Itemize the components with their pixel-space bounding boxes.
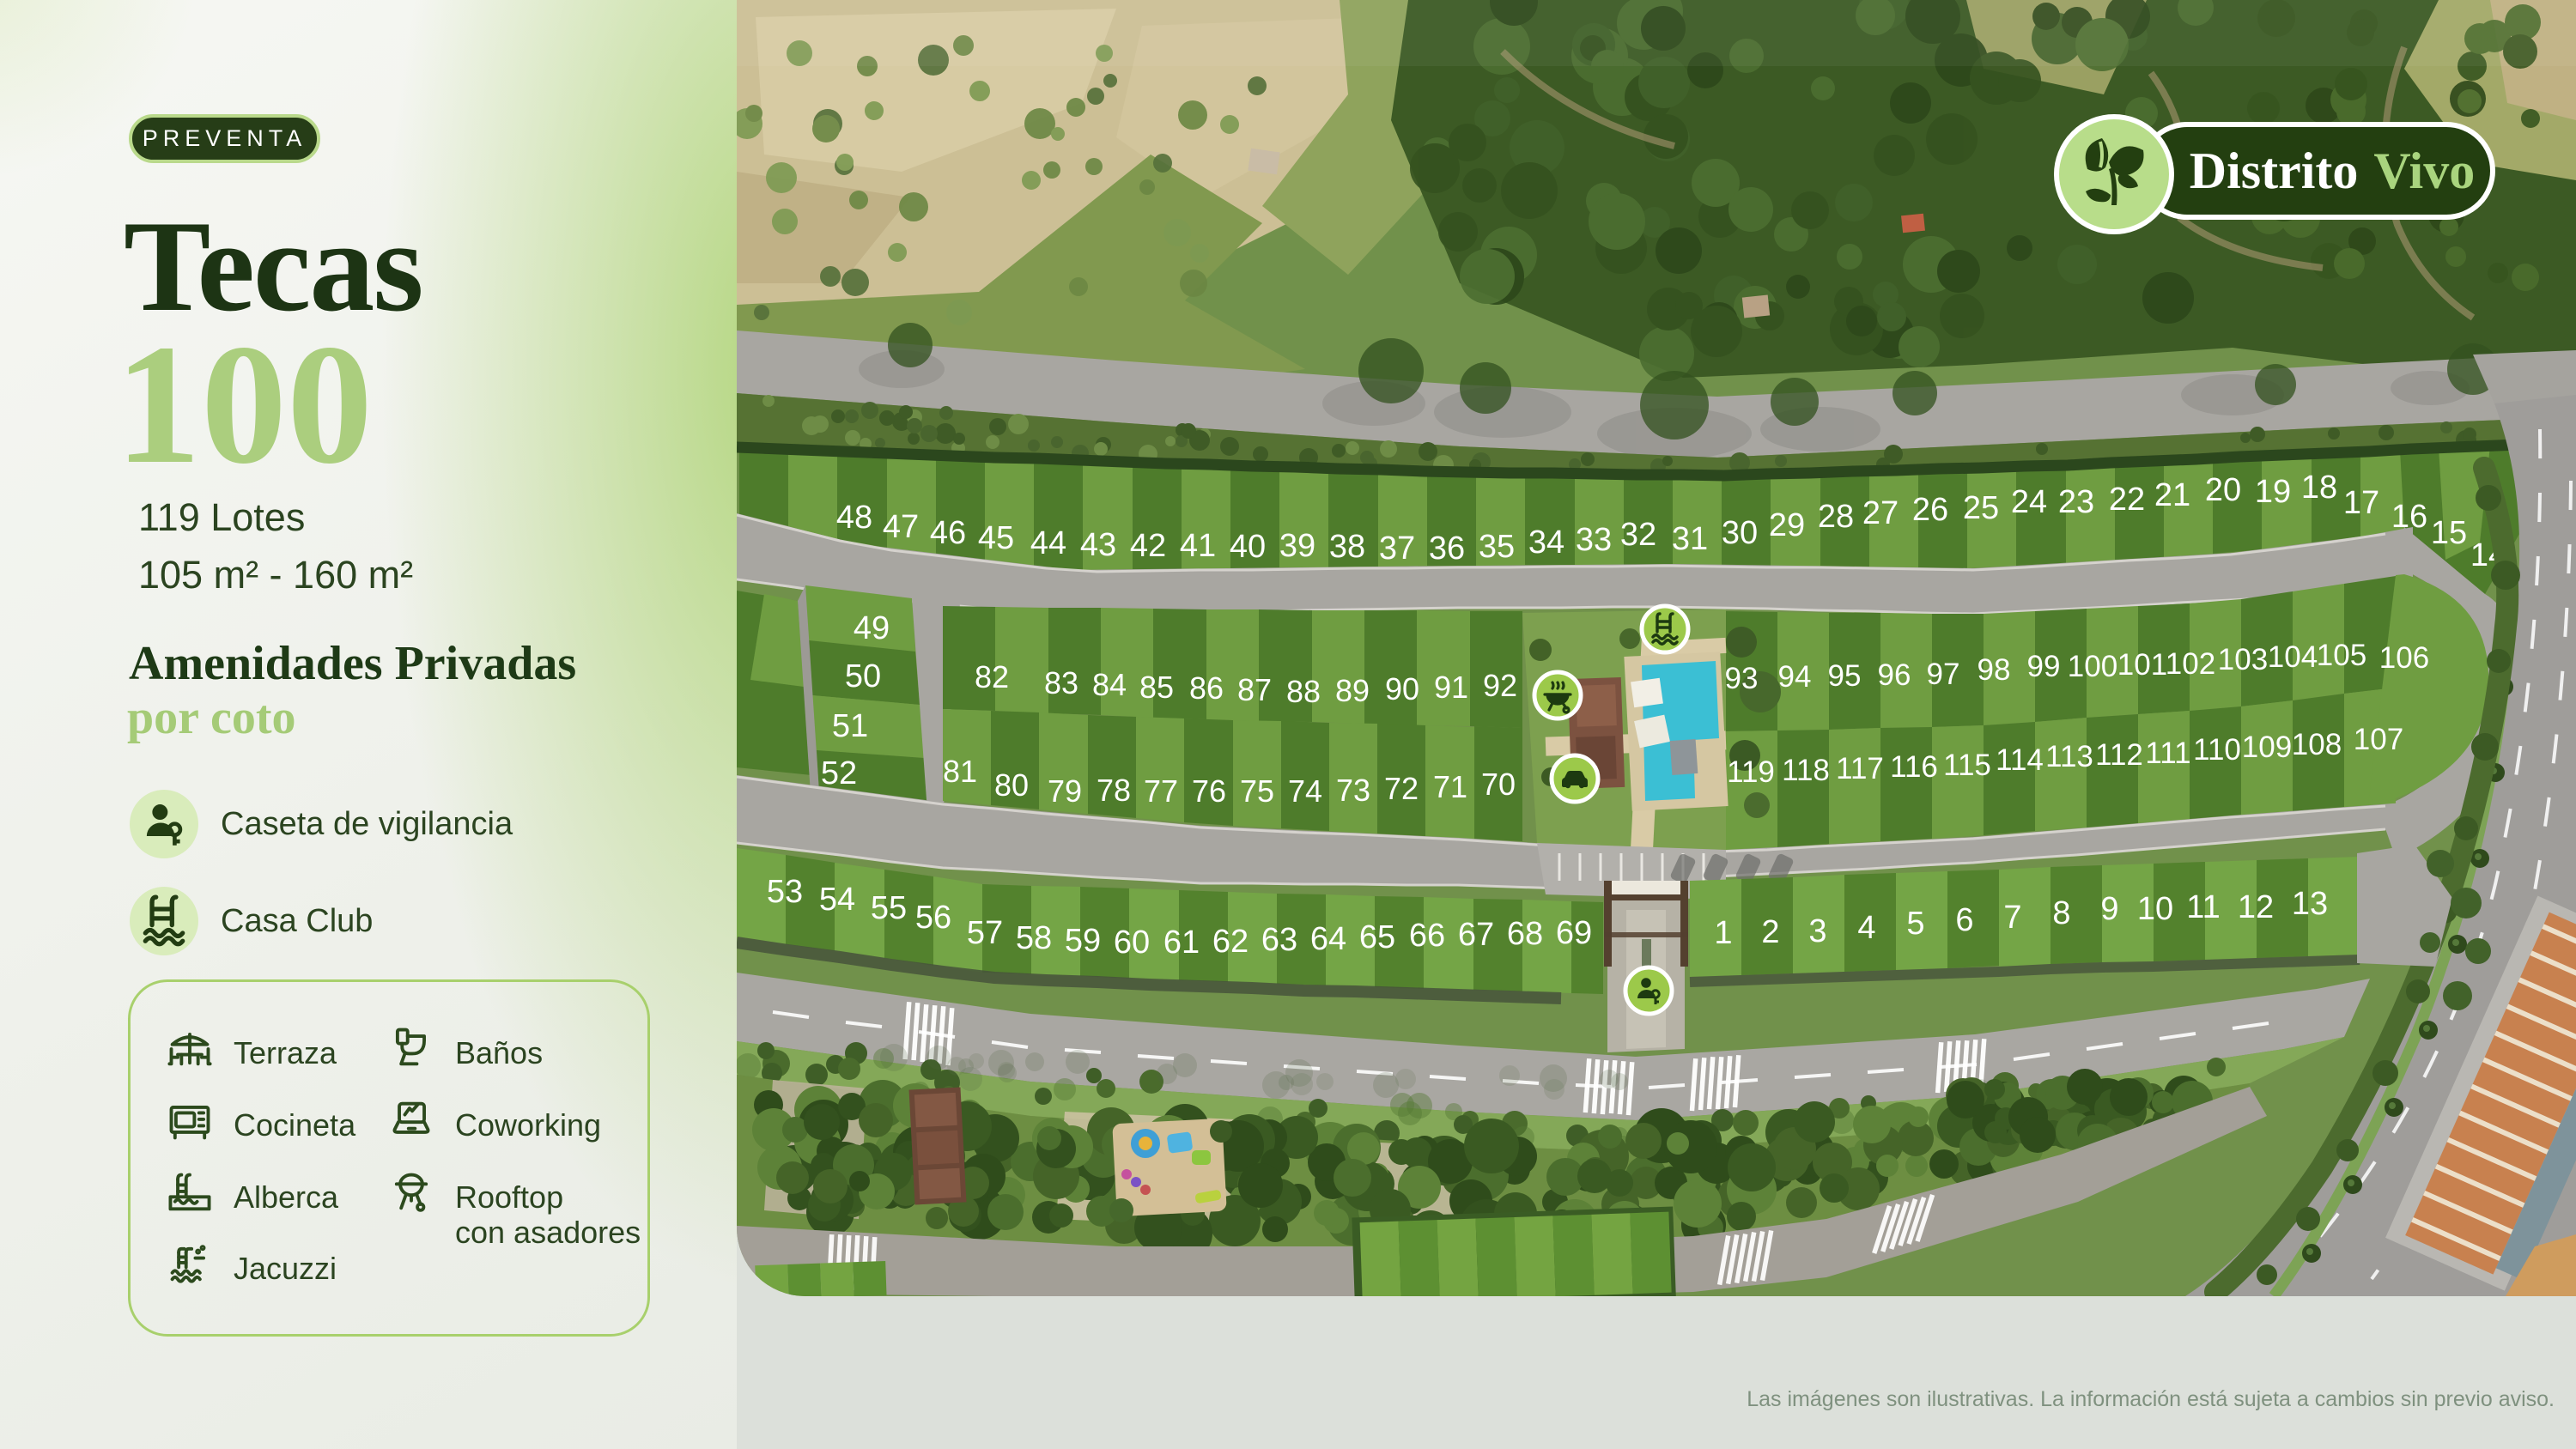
svg-text:79: 79 xyxy=(1048,773,1082,809)
svg-text:76: 76 xyxy=(1192,773,1226,809)
svg-text:78: 78 xyxy=(1097,773,1131,808)
svg-text:59: 59 xyxy=(1065,923,1101,959)
svg-text:84: 84 xyxy=(1092,667,1127,702)
svg-text:80: 80 xyxy=(994,767,1029,803)
svg-text:20: 20 xyxy=(2205,472,2241,508)
svg-text:17: 17 xyxy=(2343,485,2379,521)
svg-text:48: 48 xyxy=(836,500,872,536)
svg-text:86: 86 xyxy=(1189,670,1224,706)
svg-text:7: 7 xyxy=(2003,900,2021,936)
svg-text:49: 49 xyxy=(854,610,890,646)
svg-text:97: 97 xyxy=(1927,658,1960,691)
svg-text:10: 10 xyxy=(2137,891,2173,927)
svg-text:26: 26 xyxy=(1912,492,1948,528)
svg-text:91: 91 xyxy=(1434,670,1468,705)
svg-text:9: 9 xyxy=(2100,891,2118,927)
svg-text:96: 96 xyxy=(1878,658,1911,692)
svg-text:61: 61 xyxy=(1163,925,1200,961)
svg-text:103: 103 xyxy=(2218,643,2268,676)
svg-text:40: 40 xyxy=(1230,529,1266,565)
svg-text:52: 52 xyxy=(821,755,857,791)
svg-text:100: 100 xyxy=(2068,650,2117,683)
svg-text:90: 90 xyxy=(1385,671,1419,706)
svg-text:51: 51 xyxy=(832,708,868,744)
svg-text:112: 112 xyxy=(2095,738,2143,772)
svg-text:99: 99 xyxy=(2027,650,2061,683)
svg-text:117: 117 xyxy=(1836,752,1884,785)
svg-text:104: 104 xyxy=(2268,640,2318,674)
svg-text:118: 118 xyxy=(1782,754,1830,787)
svg-text:113: 113 xyxy=(2045,740,2093,773)
svg-text:116: 116 xyxy=(1890,750,1938,784)
svg-text:5: 5 xyxy=(1906,906,1924,942)
svg-text:36: 36 xyxy=(1429,530,1465,567)
svg-text:89: 89 xyxy=(1335,673,1370,708)
svg-text:22: 22 xyxy=(2109,482,2145,518)
svg-text:62: 62 xyxy=(1212,924,1249,960)
svg-text:88: 88 xyxy=(1286,674,1321,709)
svg-text:60: 60 xyxy=(1114,925,1150,961)
svg-text:23: 23 xyxy=(2058,484,2094,520)
svg-text:43: 43 xyxy=(1080,527,1116,563)
svg-text:106: 106 xyxy=(2379,641,2429,675)
svg-text:69: 69 xyxy=(1556,915,1592,951)
svg-text:107: 107 xyxy=(2354,723,2403,756)
svg-text:32: 32 xyxy=(1620,517,1656,553)
svg-text:73: 73 xyxy=(1336,773,1370,808)
svg-text:46: 46 xyxy=(930,515,966,551)
svg-text:29: 29 xyxy=(1769,507,1805,543)
svg-text:37: 37 xyxy=(1379,530,1415,567)
svg-text:44: 44 xyxy=(1030,525,1066,561)
svg-text:53: 53 xyxy=(767,874,803,910)
svg-text:101: 101 xyxy=(2117,648,2167,682)
svg-text:50: 50 xyxy=(845,658,881,694)
svg-text:64: 64 xyxy=(1310,921,1346,957)
svg-text:65: 65 xyxy=(1359,919,1395,955)
svg-text:108: 108 xyxy=(2292,728,2342,761)
svg-text:39: 39 xyxy=(1279,528,1315,564)
svg-text:92: 92 xyxy=(1483,668,1517,703)
svg-text:94: 94 xyxy=(1778,660,1812,694)
svg-text:58: 58 xyxy=(1016,920,1052,956)
svg-text:12: 12 xyxy=(2238,889,2274,925)
svg-text:68: 68 xyxy=(1507,916,1543,952)
svg-text:11: 11 xyxy=(2186,889,2220,925)
svg-text:30: 30 xyxy=(1722,515,1758,551)
svg-text:56: 56 xyxy=(915,900,951,936)
svg-text:74: 74 xyxy=(1288,773,1322,809)
svg-text:55: 55 xyxy=(871,890,907,926)
svg-text:41: 41 xyxy=(1180,528,1216,564)
svg-text:82: 82 xyxy=(975,659,1009,694)
svg-text:63: 63 xyxy=(1261,922,1297,958)
svg-text:2: 2 xyxy=(1761,914,1779,950)
svg-text:110: 110 xyxy=(2193,733,2241,767)
svg-text:70: 70 xyxy=(1481,767,1516,802)
svg-text:77: 77 xyxy=(1144,773,1178,809)
svg-text:102: 102 xyxy=(2166,647,2215,681)
svg-text:105: 105 xyxy=(2317,639,2366,672)
svg-text:33: 33 xyxy=(1576,522,1612,558)
svg-text:27: 27 xyxy=(1862,495,1899,531)
svg-text:35: 35 xyxy=(1479,529,1515,565)
svg-text:98: 98 xyxy=(1978,653,2011,687)
svg-text:15: 15 xyxy=(2431,515,2467,551)
svg-text:93: 93 xyxy=(1725,662,1759,695)
svg-text:119: 119 xyxy=(1727,755,1775,789)
svg-text:81: 81 xyxy=(943,754,977,789)
svg-text:115: 115 xyxy=(1943,749,1991,782)
svg-text:83: 83 xyxy=(1044,665,1078,700)
svg-text:71: 71 xyxy=(1433,769,1467,804)
svg-text:95: 95 xyxy=(1828,659,1862,693)
svg-text:8: 8 xyxy=(2052,895,2070,931)
svg-text:57: 57 xyxy=(967,915,1003,951)
svg-text:66: 66 xyxy=(1409,918,1445,954)
svg-text:75: 75 xyxy=(1240,773,1274,809)
svg-text:1: 1 xyxy=(1714,915,1732,951)
svg-text:114: 114 xyxy=(1996,743,2044,777)
svg-text:24: 24 xyxy=(2011,484,2047,520)
svg-text:34: 34 xyxy=(1528,524,1564,561)
svg-text:3: 3 xyxy=(1808,913,1826,949)
svg-text:18: 18 xyxy=(2301,470,2337,506)
svg-text:19: 19 xyxy=(2255,474,2291,510)
svg-text:21: 21 xyxy=(2154,477,2190,513)
svg-text:111: 111 xyxy=(2145,737,2190,770)
svg-text:85: 85 xyxy=(1139,670,1174,705)
svg-text:6: 6 xyxy=(1955,902,1973,938)
svg-text:72: 72 xyxy=(1384,771,1419,806)
svg-text:47: 47 xyxy=(883,509,919,545)
svg-text:4: 4 xyxy=(1857,910,1875,946)
svg-text:54: 54 xyxy=(819,882,855,918)
svg-text:13: 13 xyxy=(2292,886,2328,922)
svg-text:31: 31 xyxy=(1672,521,1708,557)
svg-text:42: 42 xyxy=(1130,528,1166,564)
svg-text:87: 87 xyxy=(1237,672,1272,707)
svg-text:45: 45 xyxy=(978,520,1014,556)
svg-text:67: 67 xyxy=(1458,917,1494,953)
svg-text:109: 109 xyxy=(2242,731,2292,764)
svg-text:38: 38 xyxy=(1329,529,1365,565)
svg-text:28: 28 xyxy=(1818,499,1854,535)
svg-text:25: 25 xyxy=(1963,490,1999,526)
